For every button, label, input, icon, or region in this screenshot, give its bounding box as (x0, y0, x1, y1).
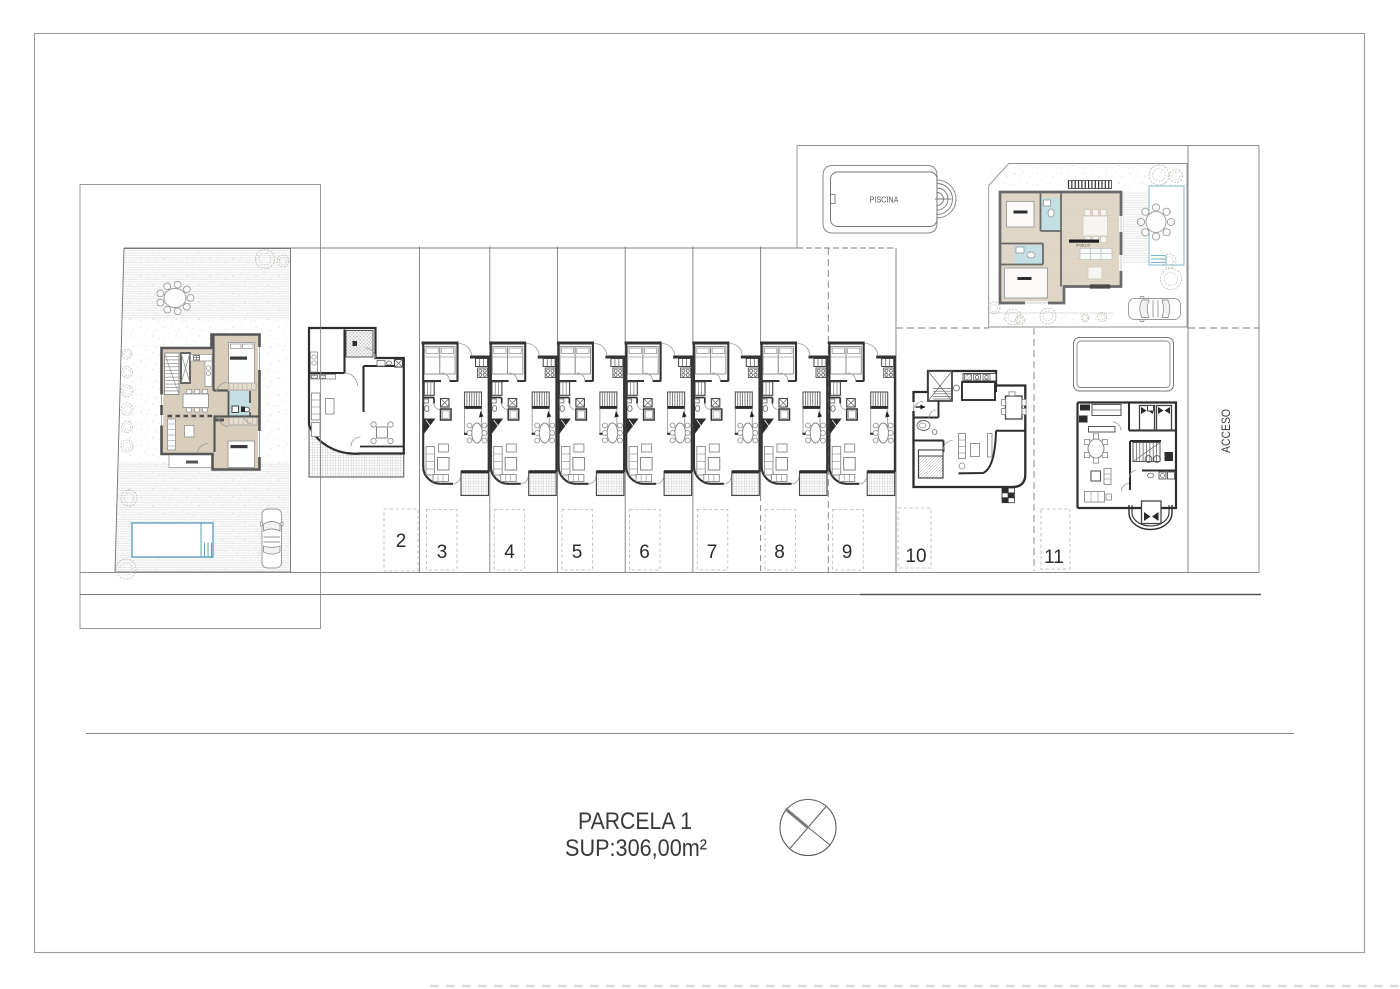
svg-text:PISCINA: PISCINA (870, 195, 899, 205)
svg-text:9: 9 (842, 542, 853, 563)
svg-text:3: 3 (437, 542, 448, 563)
svg-text:10: 10 (905, 546, 926, 567)
svg-text:PARCELA 1: PARCELA 1 (578, 808, 692, 835)
svg-text:11: 11 (1044, 547, 1064, 568)
svg-text:2: 2 (396, 531, 407, 552)
svg-text:4: 4 (504, 542, 515, 563)
svg-text:ACCESO: ACCESO (1221, 409, 1233, 453)
svg-text:S=35,1 m: S=35,1 m (1076, 244, 1090, 248)
svg-text:7: 7 (707, 542, 718, 563)
svg-text:SUP:306,00m²: SUP:306,00m² (565, 835, 707, 862)
svg-text:6: 6 (639, 542, 650, 563)
svg-text:5: 5 (572, 542, 583, 563)
svg-text:8: 8 (774, 542, 785, 563)
